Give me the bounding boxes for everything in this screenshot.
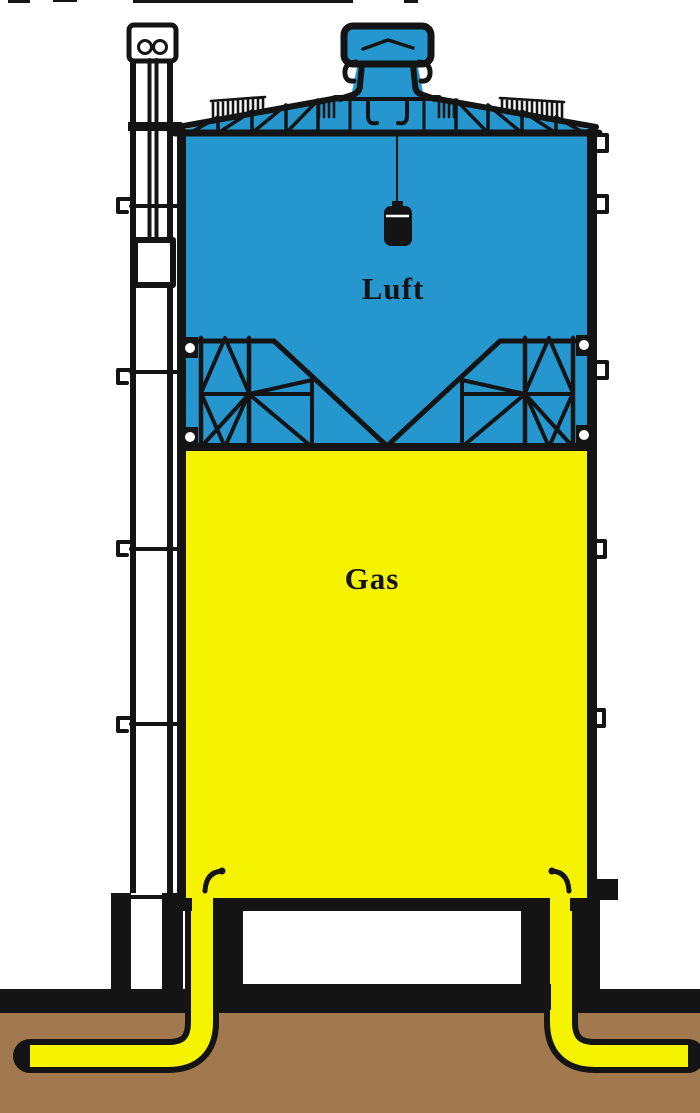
counterweight-cable bbox=[150, 60, 157, 241]
gas-space bbox=[184, 448, 588, 898]
diagram-canvas: Luft Gas bbox=[0, 0, 700, 1113]
pulley-house bbox=[129, 25, 176, 61]
vent-column bbox=[350, 97, 424, 135]
counterweight bbox=[135, 240, 173, 285]
air-label: Luft bbox=[362, 271, 425, 306]
guide-tower bbox=[118, 25, 181, 897]
tower-feet bbox=[111, 893, 183, 993]
gas-holder-diagram: Luft Gas bbox=[0, 0, 700, 1113]
top-crop-marks bbox=[8, 0, 418, 3]
gas-label: Gas bbox=[345, 561, 400, 596]
